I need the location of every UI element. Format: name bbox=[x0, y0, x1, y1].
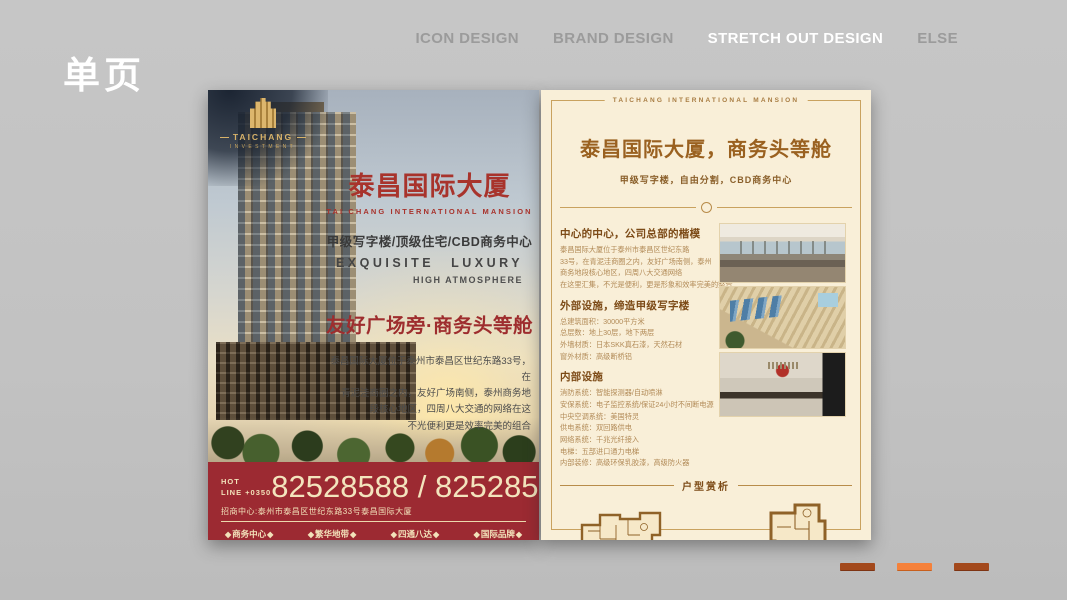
hotline-label-hot: HOT bbox=[221, 476, 271, 487]
sales-address: 招商中心:泰州市泰昌区世纪东路33号泰昌国际大厦 bbox=[221, 506, 526, 517]
brand-name: TAICHANG bbox=[220, 132, 306, 142]
flyer-description: 泰昌国际大厦位于泰州市泰昌区世纪东路33号，在 青泥洼商圈之内，友好广场南侧，泰… bbox=[326, 354, 533, 435]
floor-plan-drawing bbox=[761, 499, 831, 540]
desc-line: 泰昌国际大厦位于泰州市泰昌区世纪东路33号，在 bbox=[326, 354, 531, 386]
nav-stretch-out-design[interactable]: STRETCH OUT DESIGN bbox=[708, 30, 884, 47]
floorplan-2: 泰昌国际大厦平面图(13-30层) bbox=[755, 499, 838, 540]
section-line: 窗外材质：高级断桥铝 bbox=[560, 351, 712, 363]
feature-label: 商务中心 bbox=[232, 528, 266, 540]
floorplan-divider: 户型赏析 bbox=[560, 478, 852, 493]
phone-numbers: 82528588 / 82528577 bbox=[271, 469, 539, 505]
carousel-indicators bbox=[840, 563, 989, 571]
taichang-logo: TAICHANG INVESTMENT bbox=[220, 98, 306, 150]
diamond-icon: ◆ bbox=[267, 530, 273, 539]
flyer-front: TAICHANG INVESTMENT 泰昌国际大厦 TAI CHANG INT… bbox=[208, 90, 539, 540]
flyer-title-block: 泰昌国际大厦 TAI CHANG INTERNATIONAL MANSION 甲… bbox=[326, 166, 533, 435]
portfolio-page: ICON DESIGN BRAND DESIGN STRETCH OUT DES… bbox=[0, 0, 1067, 600]
feature-label: 四通八达 bbox=[398, 528, 432, 540]
brand-subtitle: INVESTMENT bbox=[220, 144, 306, 150]
diamond-icon: ◆ bbox=[474, 530, 480, 539]
feature-item: ◆ 四通八达 ◆ bbox=[391, 528, 439, 540]
section-line: 中央空调系统：美国特灵 bbox=[560, 411, 712, 423]
section-heading: 内部设施 bbox=[560, 369, 712, 384]
section-line: 总建筑面积：30000平方米 bbox=[560, 316, 712, 328]
feature-item: ◆ 商务中心 ◆ bbox=[225, 528, 273, 540]
section-line: 网络系统：千兆光纤接入 bbox=[560, 434, 712, 446]
diamond-icon: ◆ bbox=[391, 530, 397, 539]
flyer-footer: HOT LINE +0350 82528588 / 82528577 招商中心:… bbox=[208, 462, 539, 540]
section-line: 安保系统：电子监控系统/保证24小时不间断电源 bbox=[560, 399, 712, 411]
flyer-slogan: 友好广场旁·商务头等舱 bbox=[326, 309, 533, 338]
floor-plan-drawing bbox=[574, 505, 666, 540]
divider-line bbox=[738, 485, 852, 486]
flyer-title: 泰昌国际大厦 bbox=[326, 166, 533, 203]
photo-staircase bbox=[719, 286, 846, 349]
nav-brand-design[interactable]: BRAND DESIGN bbox=[553, 30, 674, 47]
feature-label: 繁华地带 bbox=[315, 528, 349, 540]
back-title: 泰昌国际大厦，商务头等舱 bbox=[560, 133, 852, 162]
section-line: 在这里汇集，不光是便利，更是形象和效率完美的整合 bbox=[560, 279, 712, 291]
flyer-back-content: 泰昌国际大厦，商务头等舱 甲级写字楼，自由分割，CBD商务中心 中心的中心，公司… bbox=[560, 100, 852, 530]
content-columns: 中心的中心，公司总部的楷模 泰昌国际大厦位于泰州市泰昌区世纪东路 33号，在青泥… bbox=[560, 219, 852, 469]
diamond-icon: ◆ bbox=[225, 530, 231, 539]
desc-line: 青泥洼商圈之内，友好广场南侧，泰州商务地 bbox=[326, 386, 531, 402]
indicator-dash[interactable] bbox=[954, 563, 989, 571]
section-line: 泰昌国际大厦位于泰州市泰昌区世纪东路 bbox=[560, 244, 712, 256]
building-photo: TAICHANG INVESTMENT 泰昌国际大厦 TAI CHANG INT… bbox=[208, 90, 539, 462]
floorplan-1: 泰昌国际大厦平面图(5-12层) bbox=[574, 505, 666, 540]
circle-ornament-icon bbox=[701, 202, 712, 213]
tagline-exquisite: EXQUISITE LUXURY bbox=[326, 256, 533, 270]
section-line: 外墙材质：日本SKK真石漆，天然石材 bbox=[560, 339, 712, 351]
hotline-row: HOT LINE +0350 82528588 / 82528577 bbox=[221, 469, 526, 505]
divider-line bbox=[560, 207, 696, 208]
indicator-dash[interactable] bbox=[897, 563, 932, 571]
section-line: 33号，在青泥洼商圈之内，友好广场南侧，泰州 bbox=[560, 256, 712, 268]
section-line: 商务地段核心地区，四周八大交通网络 bbox=[560, 267, 712, 279]
tagline-atmosphere: HIGH ATMOSPHERE bbox=[326, 275, 533, 285]
text-column: 中心的中心，公司总部的楷模 泰昌国际大厦位于泰州市泰昌区世纪东路 33号，在青泥… bbox=[560, 219, 712, 469]
section-heading: 外部设施，缔造甲级写字楼 bbox=[560, 298, 712, 313]
nav-icon-design[interactable]: ICON DESIGN bbox=[415, 30, 519, 47]
top-navigation: ICON DESIGN BRAND DESIGN STRETCH OUT DES… bbox=[415, 30, 958, 47]
page-title: 单页 bbox=[63, 45, 145, 99]
hotline-label-line: LINE +0350 bbox=[221, 487, 271, 498]
section-line: 消防系统：智能探测器/自动喷淋 bbox=[560, 387, 712, 399]
floorplan-row: 泰昌国际大厦平面图(5-12层) 泰昌国际大厦平面图(13-30层) bbox=[560, 499, 852, 540]
feature-item: ◆ 繁华地带 ◆ bbox=[308, 528, 356, 540]
flyer-title-en: TAI CHANG INTERNATIONAL MANSION bbox=[326, 207, 533, 216]
desc-line: 段核心地区，四周八大交通的网络在这 bbox=[326, 402, 531, 418]
building-logo-icon bbox=[250, 98, 276, 128]
photo-lobby bbox=[719, 352, 846, 417]
desc-line: 不光便利更是效率完美的组合 bbox=[326, 419, 531, 435]
diamond-icon: ◆ bbox=[516, 530, 522, 539]
feature-list: ◆ 商务中心 ◆ ◆ 繁华地带 ◆ ◆ 四通八达 ◆ ◆ 国际品牌 ◆ bbox=[221, 522, 526, 540]
section-heading: 中心的中心，公司总部的楷模 bbox=[560, 226, 712, 241]
section-line: 供电系统：双回路供电 bbox=[560, 422, 712, 434]
feature-label: 国际品牌 bbox=[481, 528, 515, 540]
section-line: 总层数：地上30层，地下两层 bbox=[560, 327, 712, 339]
divider-line bbox=[717, 207, 853, 208]
feature-item: ◆ 国际品牌 ◆ bbox=[474, 528, 522, 540]
photo-column bbox=[719, 223, 846, 469]
diamond-icon: ◆ bbox=[350, 530, 356, 539]
diamond-icon: ◆ bbox=[308, 530, 314, 539]
section-line: 内部装修：高级环保乳胶漆，高级防火器 bbox=[560, 457, 712, 469]
ornament-divider bbox=[560, 202, 852, 213]
nav-else[interactable]: ELSE bbox=[917, 30, 958, 47]
indicator-dash[interactable] bbox=[840, 563, 875, 571]
divider-line bbox=[560, 485, 674, 486]
hotline-label: HOT LINE +0350 bbox=[221, 476, 271, 499]
section-line: 电梯：五部进口通力电梯 bbox=[560, 446, 712, 458]
flyer-subtitle: 甲级写字楼/顶级住宅/CBD商务中心 bbox=[326, 231, 533, 250]
diamond-icon: ◆ bbox=[433, 530, 439, 539]
photo-conference-room bbox=[719, 223, 846, 283]
floorplan-heading: 户型赏析 bbox=[682, 478, 730, 493]
back-subtitle: 甲级写字楼，自由分割，CBD商务中心 bbox=[560, 173, 852, 186]
flyer-back: TAICHANG INTERNATIONAL MANSION 泰昌国际大厦，商务… bbox=[541, 90, 871, 540]
